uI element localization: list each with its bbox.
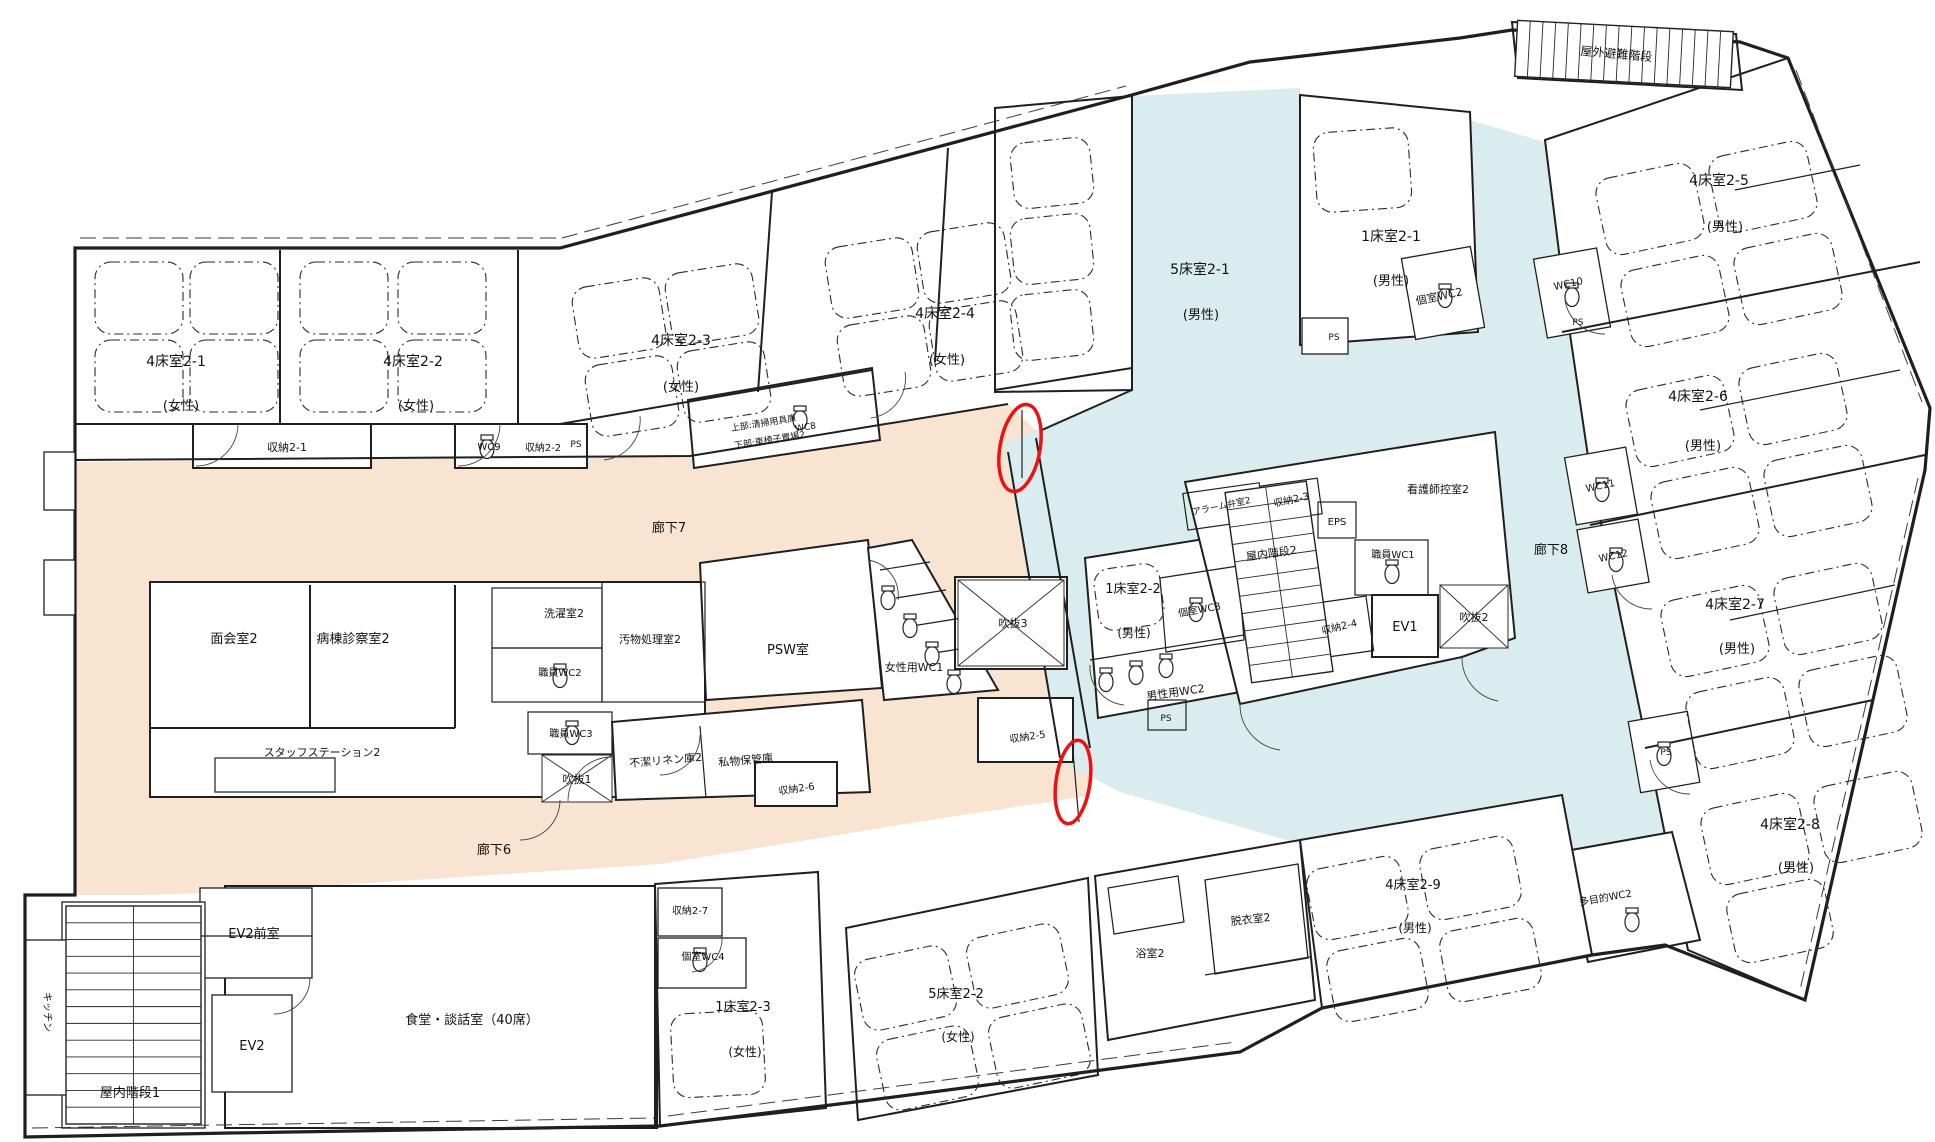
kitchen: キッチン bbox=[41, 992, 53, 1032]
room-1bed-2-2: 1床室2-2 bbox=[1105, 581, 1161, 597]
room-4bed-2-8: 4床室2-8 bbox=[1760, 816, 1820, 833]
storage-2-1: 収納2-1 bbox=[267, 441, 307, 454]
wc-9: WC9 bbox=[477, 442, 500, 453]
room-4bed-2-3-gender: (女性) bbox=[663, 379, 699, 395]
room-5bed-2-1-gender: (男性) bbox=[1183, 308, 1219, 323]
bath-room-2: 浴室2 bbox=[1136, 946, 1165, 960]
ps-5: PS bbox=[1328, 333, 1339, 343]
room-5bed-2-2: 5床室2-2 bbox=[928, 986, 984, 1002]
storage-2-7: 収納2-7 bbox=[672, 904, 708, 917]
room-1bed-2-1-gender: (男性) bbox=[1373, 274, 1409, 289]
room-4bed-2-1: 4床室2-1 bbox=[146, 353, 206, 370]
room-4bed-2-5: 4床室2-5 bbox=[1689, 172, 1749, 189]
staff-wc-2: 職員WC2 bbox=[538, 667, 581, 679]
staff-wc-3: 職員WC3 bbox=[549, 728, 592, 740]
room-4bed-2-6-gender: (男性) bbox=[1685, 439, 1721, 454]
room-5bed-2-1: 5床室2-1 bbox=[1170, 261, 1230, 278]
room-4bed-2-9-gender: (男性) bbox=[1398, 921, 1431, 935]
room-4bed-2-9: 4床室2-9 bbox=[1385, 877, 1441, 893]
room-4bed-2-4: 4床室2-4 bbox=[915, 305, 975, 322]
ward-exam-room-2: 病棟診察室2 bbox=[316, 631, 389, 647]
wc-private-4: 個室WC4 bbox=[681, 950, 724, 963]
laundry-room-2: 洗濯室2 bbox=[544, 606, 584, 620]
staff-station-2: スタッフステーション2 bbox=[264, 746, 381, 759]
room-4bed-2-8-gender: (男性) bbox=[1778, 861, 1814, 876]
corridor-6-label: 廊下6 bbox=[477, 842, 511, 858]
room-1bed-2-3-gender: (女性) bbox=[728, 1044, 761, 1059]
floor-plan-page: 4床室2-1(女性)4床室2-2(女性)4床室2-3(女性)4床室2-4(女性)… bbox=[0, 0, 1935, 1142]
room-4bed-2-3: 4床室2-3 bbox=[651, 332, 711, 349]
room-4bed-2-6: 4床室2-6 bbox=[1668, 388, 1728, 405]
room-4bed-2-5-gender: (男性) bbox=[1707, 220, 1743, 235]
void-1: 吹抜1 bbox=[563, 772, 592, 786]
ev-2: EV2 bbox=[239, 1039, 264, 1054]
eps: EPS bbox=[1328, 517, 1347, 528]
room-4bed-2-2-gender: (女性) bbox=[398, 398, 434, 414]
female-wc-1: 女性用WC1 bbox=[885, 660, 944, 674]
room-4bed-2-1-gender: (女性) bbox=[163, 398, 199, 414]
room-1bed-2-3: 1床室2-3 bbox=[715, 999, 771, 1015]
room-4bed-2-7: 4床室2-7 bbox=[1705, 596, 1765, 613]
void-2: 吹抜2 bbox=[1460, 610, 1489, 624]
corridor-8-label: 廊下8 bbox=[1534, 542, 1568, 558]
room-5bed-2-2-gender: (女性) bbox=[941, 1029, 974, 1044]
room-1bed-2-1: 1床室2-1 bbox=[1361, 228, 1421, 245]
room-4bed-2-4-gender: (女性) bbox=[929, 352, 965, 368]
ps-1: PS bbox=[1572, 318, 1583, 328]
ps-3: PS bbox=[570, 440, 581, 450]
room-4bed-2-7-gender: (男性) bbox=[1719, 642, 1755, 657]
room-4bed-2-2: 4床室2-2 bbox=[383, 353, 443, 370]
soiled-material-room-2: 汚物処理室2 bbox=[619, 632, 681, 646]
indoor-stair-1: 屋内階段1 bbox=[100, 1085, 160, 1101]
ev2-anteroom: EV2前室 bbox=[228, 926, 279, 942]
floor-plan-svg: 4床室2-1(女性)4床室2-2(女性)4床室2-3(女性)4床室2-4(女性)… bbox=[0, 0, 1935, 1142]
ps-4: PS bbox=[1160, 714, 1171, 724]
ps-2: PS bbox=[1660, 748, 1671, 758]
nurse-lounge-2: 看護師控室2 bbox=[1407, 482, 1469, 496]
meeting-room-2: 面会室2 bbox=[210, 631, 257, 647]
void-3: 吹抜3 bbox=[999, 616, 1028, 630]
staff-wc-1: 職員WC1 bbox=[1371, 549, 1414, 561]
room-1bed-2-2-gender: (男性) bbox=[1117, 626, 1150, 640]
corridor-7-label: 廊下7 bbox=[652, 520, 686, 536]
storage-2-2: 収納2-2 bbox=[525, 441, 561, 454]
dining-lounge: 食堂・談話室（40席） bbox=[405, 1012, 539, 1028]
ev-1: EV1 bbox=[1392, 620, 1417, 635]
psw-room: PSW室 bbox=[767, 642, 809, 658]
